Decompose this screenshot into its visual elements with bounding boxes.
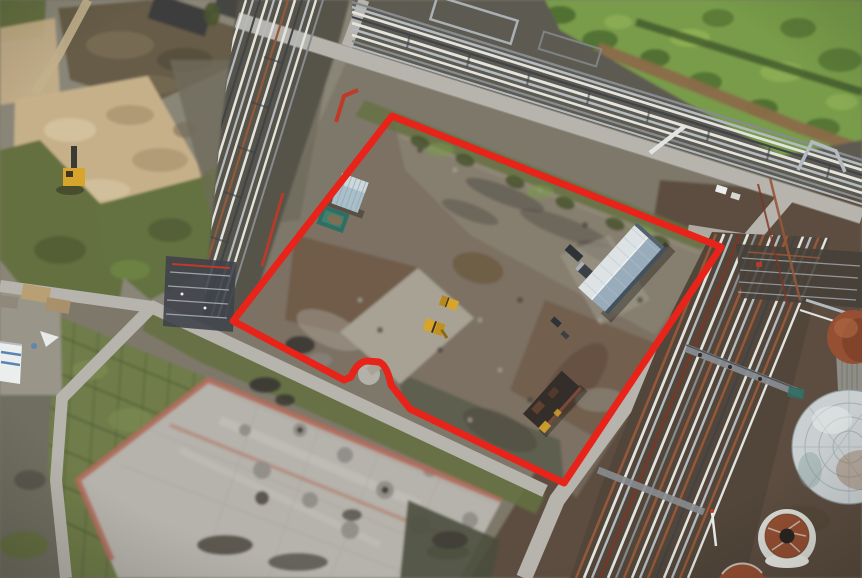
aerial-photo-canvas <box>0 0 862 578</box>
photo-frame <box>0 0 862 578</box>
vignette <box>0 0 862 578</box>
